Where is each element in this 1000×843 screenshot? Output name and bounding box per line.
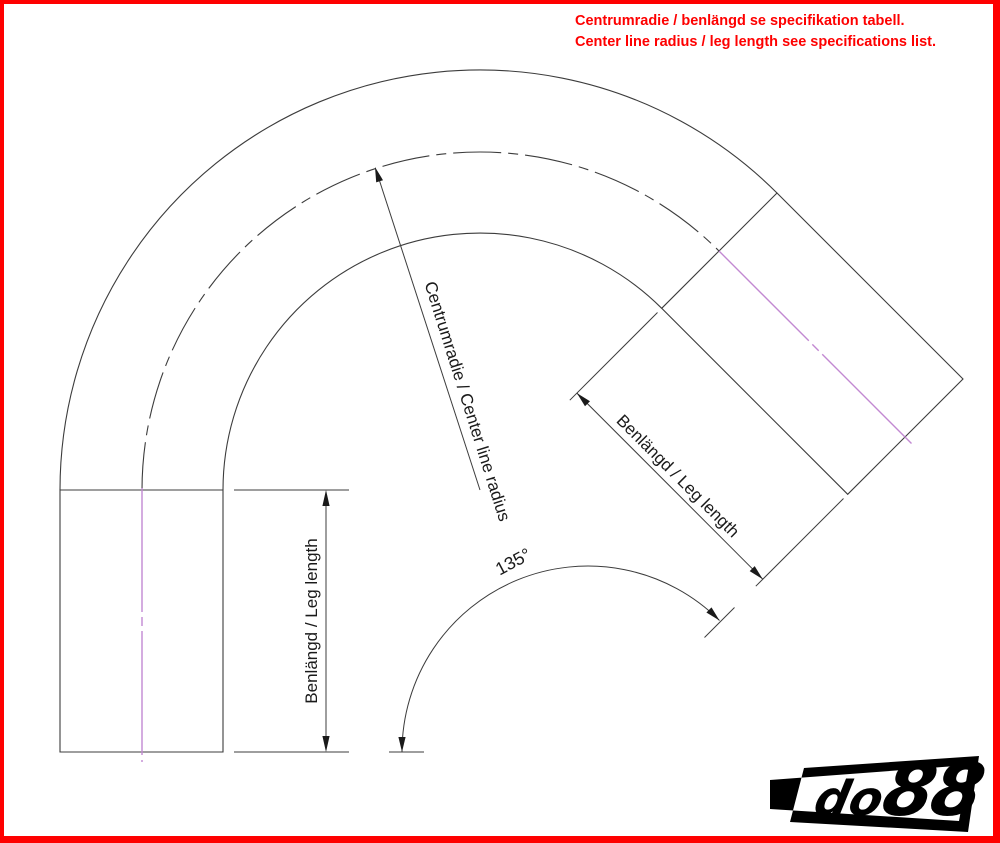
angle-arrowhead-right xyxy=(706,607,719,620)
right-leg-dimension-label: Benlängd / Leg length xyxy=(613,411,743,541)
angle-label: 135° xyxy=(492,544,534,579)
left-leg-arrowhead-top xyxy=(322,490,329,506)
do88-logo: do88 xyxy=(770,748,990,833)
bend-inner-arc xyxy=(223,233,662,490)
angle-dimension-arc xyxy=(402,566,720,752)
bend-outer-arc xyxy=(60,70,777,490)
pipe-bend xyxy=(60,70,963,762)
header-note: Centrumradie / benlängd se specifikation… xyxy=(575,11,936,53)
radius-dimension-line xyxy=(377,172,481,491)
logo-text-suffix: 88 xyxy=(876,748,990,833)
left-leg-dimension-label: Benlängd / Leg length xyxy=(302,538,321,703)
left-leg-dimension: Benlängd / Leg length xyxy=(234,490,349,752)
right-leg-dimension-line xyxy=(577,393,763,579)
logo-text: do88 xyxy=(808,748,990,833)
radius-arrowhead xyxy=(375,167,383,182)
logo-text-prefix: do xyxy=(809,771,888,826)
right-leg-outline xyxy=(662,193,963,494)
right-leg-extension-upper xyxy=(570,313,658,401)
radius-dimension: Centrumradie / Center line radius xyxy=(375,167,514,524)
angle-arrowhead-left xyxy=(398,737,405,752)
right-leg-extension-lower xyxy=(756,499,844,587)
technical-drawing-canvas: Centrumradie / Center line radius 135° B… xyxy=(0,0,1000,843)
page: Centrumradie / benlängd se specifikation… xyxy=(0,0,1000,843)
angle-dimension: 135° xyxy=(389,544,735,752)
right-leg-centerline xyxy=(719,251,912,444)
left-leg-arrowhead-bottom xyxy=(322,736,329,752)
radius-dimension-label: Centrumradie / Center line radius xyxy=(421,279,514,524)
header-note-swedish: Centrumradie / benlängd se specifikation… xyxy=(575,11,936,32)
header-note-english: Center line radius / leg length see spec… xyxy=(575,32,936,53)
